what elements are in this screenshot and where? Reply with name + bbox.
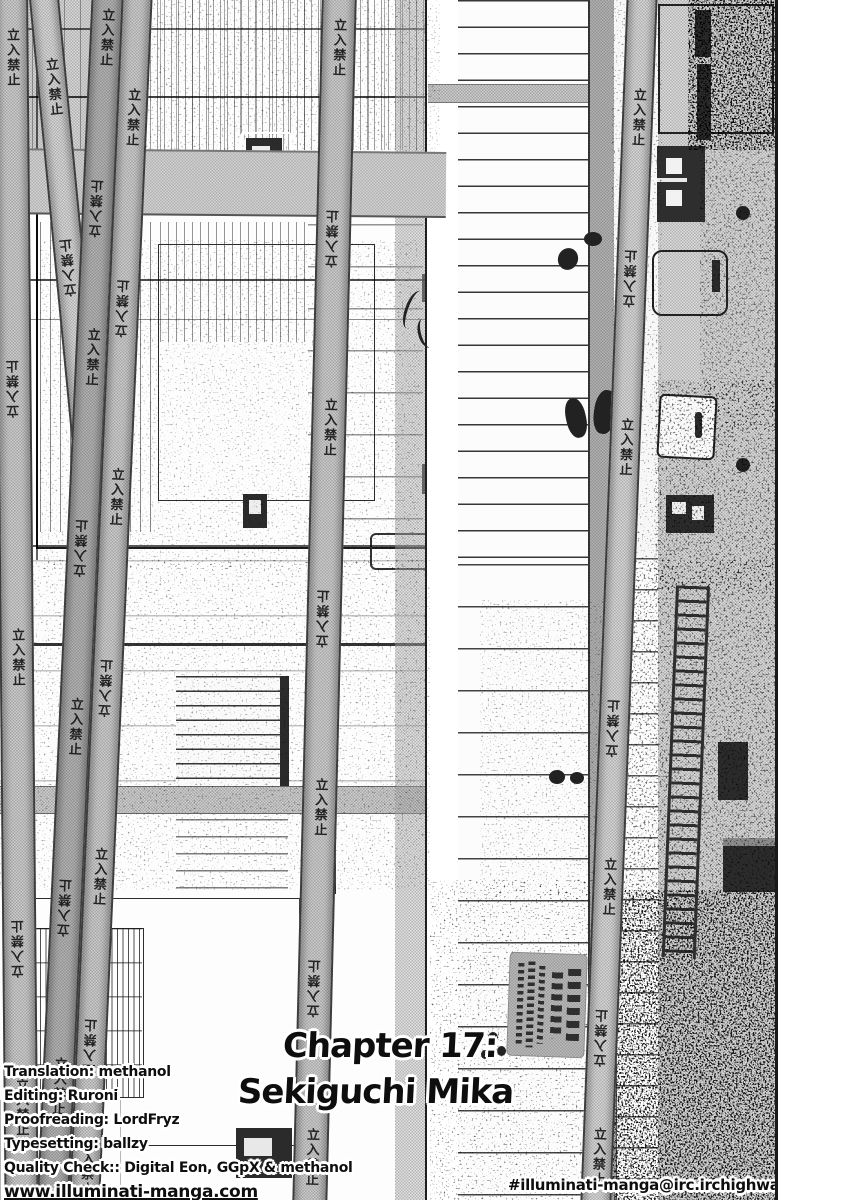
keep-out-tape-label: 立入禁止	[72, 517, 94, 578]
keep-out-tape-label: 立入禁止	[597, 857, 618, 918]
floor-sign	[656, 394, 717, 461]
keep-out-tape-label: 立入禁止	[113, 277, 135, 338]
kiosk-window	[672, 502, 686, 514]
dark-block-capped	[723, 838, 777, 892]
keep-out-tape-label: 立入禁止	[592, 1007, 613, 1068]
keep-out-tape-label: 立入禁止	[40, 57, 65, 119]
credit-proofreading: Proofreading: LordFryz	[4, 1108, 353, 1132]
keep-out-tape-label: 立入禁止	[314, 588, 334, 648]
dark-structure	[657, 146, 705, 222]
staircase-rail	[280, 676, 289, 792]
keep-out-tape-label: 立入禁止	[323, 208, 343, 268]
keep-out-tape-label: 立入禁止	[319, 398, 339, 458]
keep-out-tape-label: 立入禁止	[55, 877, 77, 938]
roof-line	[0, 28, 430, 30]
round-object	[736, 206, 750, 220]
staircase-lower	[176, 802, 288, 898]
keep-out-tape-label: 立入禁止	[7, 628, 27, 688]
keep-out-tape-label: 立入禁止	[10, 918, 30, 978]
credit-typesetting: Typesetting: ballzy	[4, 1132, 353, 1156]
keep-out-tape-label: 立入禁止	[95, 8, 117, 69]
keep-out-tape-label: 立入禁止	[328, 18, 348, 78]
roof-grid-top-dense	[150, 0, 430, 150]
sign-text-column-large	[566, 969, 582, 1041]
person-overhead	[570, 772, 584, 784]
keep-out-tape-label: 立入禁止	[104, 467, 126, 528]
person-overhead	[549, 770, 565, 784]
keep-out-tape-label: 立入禁止	[305, 957, 325, 1017]
skylight	[666, 158, 682, 174]
credits-block: Translation: methanol Editing: Ruroni Pr…	[4, 1060, 353, 1200]
kiosk-hatch	[249, 500, 261, 514]
sign-slot	[695, 412, 702, 438]
sign-text-column	[516, 963, 525, 1045]
sign-text-column	[526, 961, 536, 1047]
page-margin-right	[778, 0, 845, 1200]
skylight	[666, 190, 682, 206]
keep-out-tape-label: 立入禁止	[614, 417, 635, 478]
building-side-line	[36, 60, 38, 560]
person-overhead	[497, 1046, 506, 1056]
station-signboard	[506, 952, 588, 1059]
irc-channel-text: #illuminati-manga@irc.irchighway.net	[508, 1176, 778, 1194]
keep-out-tape-label: 立入禁止	[621, 247, 642, 308]
keep-out-tape-label: 立入禁止	[2, 28, 22, 88]
person-overhead	[584, 232, 602, 246]
dark-bar	[697, 64, 711, 140]
keep-out-tape-label: 立入禁止	[64, 697, 86, 758]
round-object	[736, 458, 750, 472]
keep-out-tape-label: 立入禁止	[627, 88, 648, 149]
sign-text-column-large	[550, 972, 563, 1038]
keep-out-tape-label: 立入禁止	[87, 177, 109, 238]
dark-block	[718, 742, 748, 800]
building-base-line	[0, 545, 430, 547]
keep-out-tape-label: 立入禁止	[88, 847, 110, 908]
artwork-canvas: 立入禁止 立入禁止 立入禁止 立入禁止 立入禁止 立入禁止 立入禁止 立入禁止 …	[0, 0, 778, 1200]
keep-out-tape-label: 立入禁止	[121, 87, 143, 148]
dark-bar	[695, 10, 711, 57]
roof-opening-outline	[658, 4, 774, 134]
keep-out-tape-label: 立入禁止	[96, 657, 118, 718]
keep-out-tape-label: 立入禁止	[80, 327, 102, 388]
keep-out-tape-label: 立入禁止	[309, 778, 329, 838]
manga-page: 立入禁止 立入禁止 立入禁止 立入禁止 立入禁止 立入禁止 立入禁止 立入禁止 …	[0, 0, 845, 1200]
cross-band	[428, 84, 590, 103]
slot	[712, 260, 720, 292]
dark-kiosk	[666, 495, 714, 533]
website-text: www.illuminati-manga.com	[4, 1180, 353, 1200]
credit-editing: Editing: Ruroni	[4, 1084, 353, 1108]
kiosk-window	[692, 506, 704, 520]
structure-gap	[657, 178, 687, 182]
credit-quality-check: Quality Check:: Digital Eon, GGpX & meth…	[4, 1156, 353, 1180]
sign-text-column	[537, 966, 546, 1044]
staircase	[176, 676, 288, 792]
keep-out-tape-label: 立入禁止	[5, 358, 25, 418]
keep-out-tape-label: 立入禁止	[603, 697, 624, 758]
credit-translation: Translation: methanol	[4, 1060, 353, 1084]
